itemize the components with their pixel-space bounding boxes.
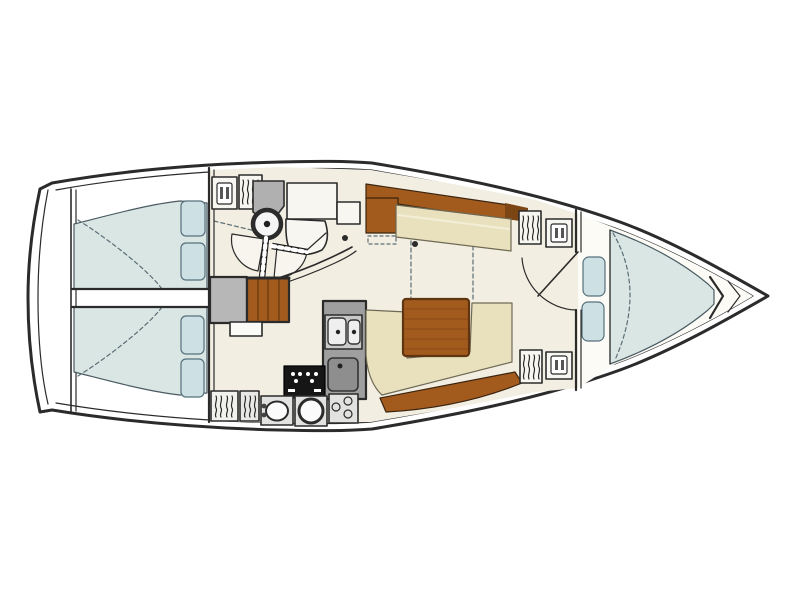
clothes-shelf-icon xyxy=(217,183,232,204)
chart-table xyxy=(287,183,337,219)
pillow xyxy=(181,201,205,236)
table-leg-fitting xyxy=(412,241,418,247)
chart-table-extension xyxy=(337,202,360,224)
engine-box xyxy=(210,277,247,323)
faucet xyxy=(352,330,356,334)
pillow xyxy=(181,316,204,354)
fridge-toploader xyxy=(328,358,358,391)
faucet xyxy=(336,330,340,334)
sideboard xyxy=(366,198,398,233)
pillow xyxy=(181,359,204,397)
pillow xyxy=(181,243,205,280)
table-leg-fitting xyxy=(342,235,348,241)
tap xyxy=(262,404,267,409)
clothes-shelf-icon xyxy=(551,356,567,374)
burner-cabinet xyxy=(329,394,358,423)
pillow xyxy=(582,302,604,341)
round-sink xyxy=(299,399,323,423)
washbasin-drain xyxy=(264,221,270,227)
tap xyxy=(262,413,267,418)
clothes-shelf-icon xyxy=(551,224,567,242)
oval-sink xyxy=(266,402,288,421)
yacht-floorplan-canvas xyxy=(0,0,800,600)
bottom-step xyxy=(230,322,262,336)
pillow xyxy=(583,257,605,296)
floorplan-svg xyxy=(0,0,800,600)
fridge-latch xyxy=(338,364,343,369)
stove-oven xyxy=(284,366,325,398)
saloon-table xyxy=(403,299,469,356)
